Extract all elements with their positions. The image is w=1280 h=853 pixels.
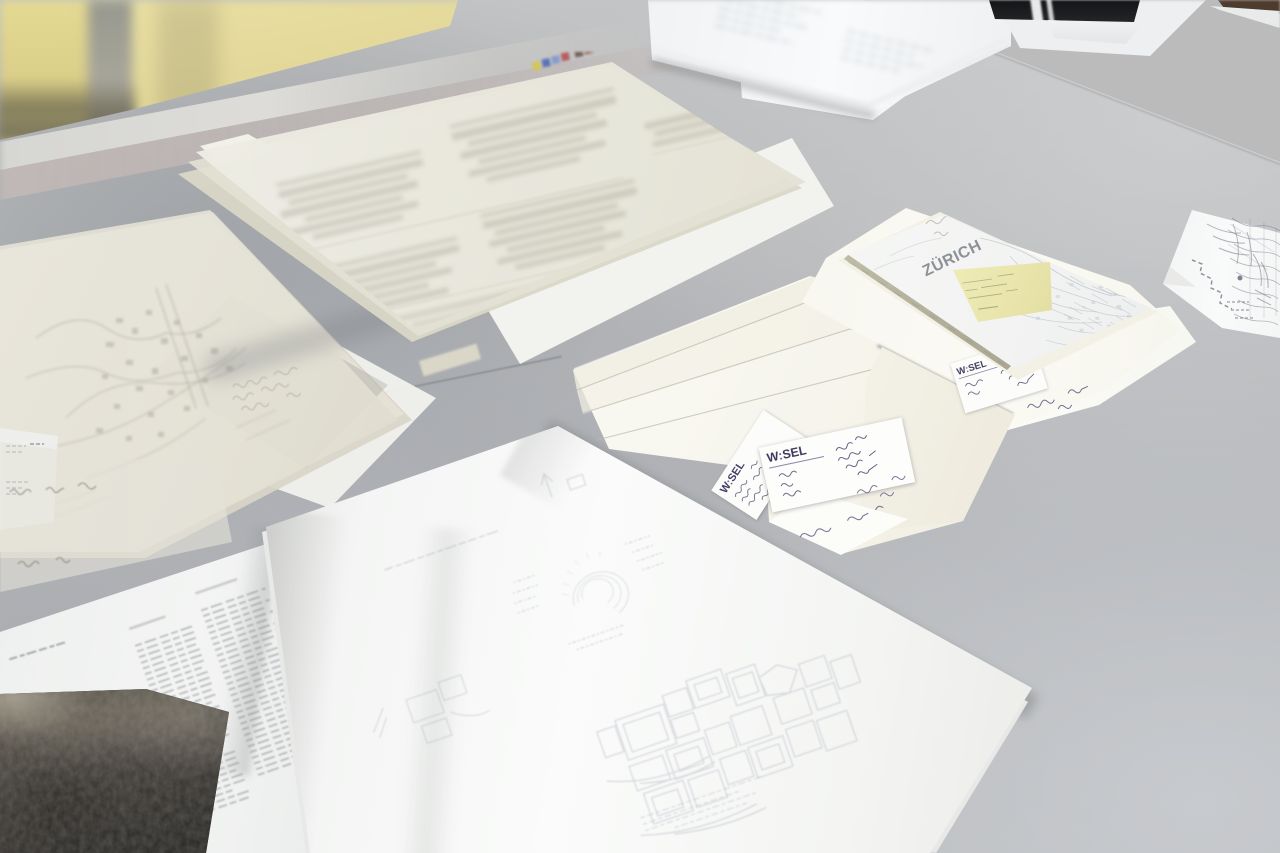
svg-text:W:SEL: W:SEL	[766, 443, 808, 465]
